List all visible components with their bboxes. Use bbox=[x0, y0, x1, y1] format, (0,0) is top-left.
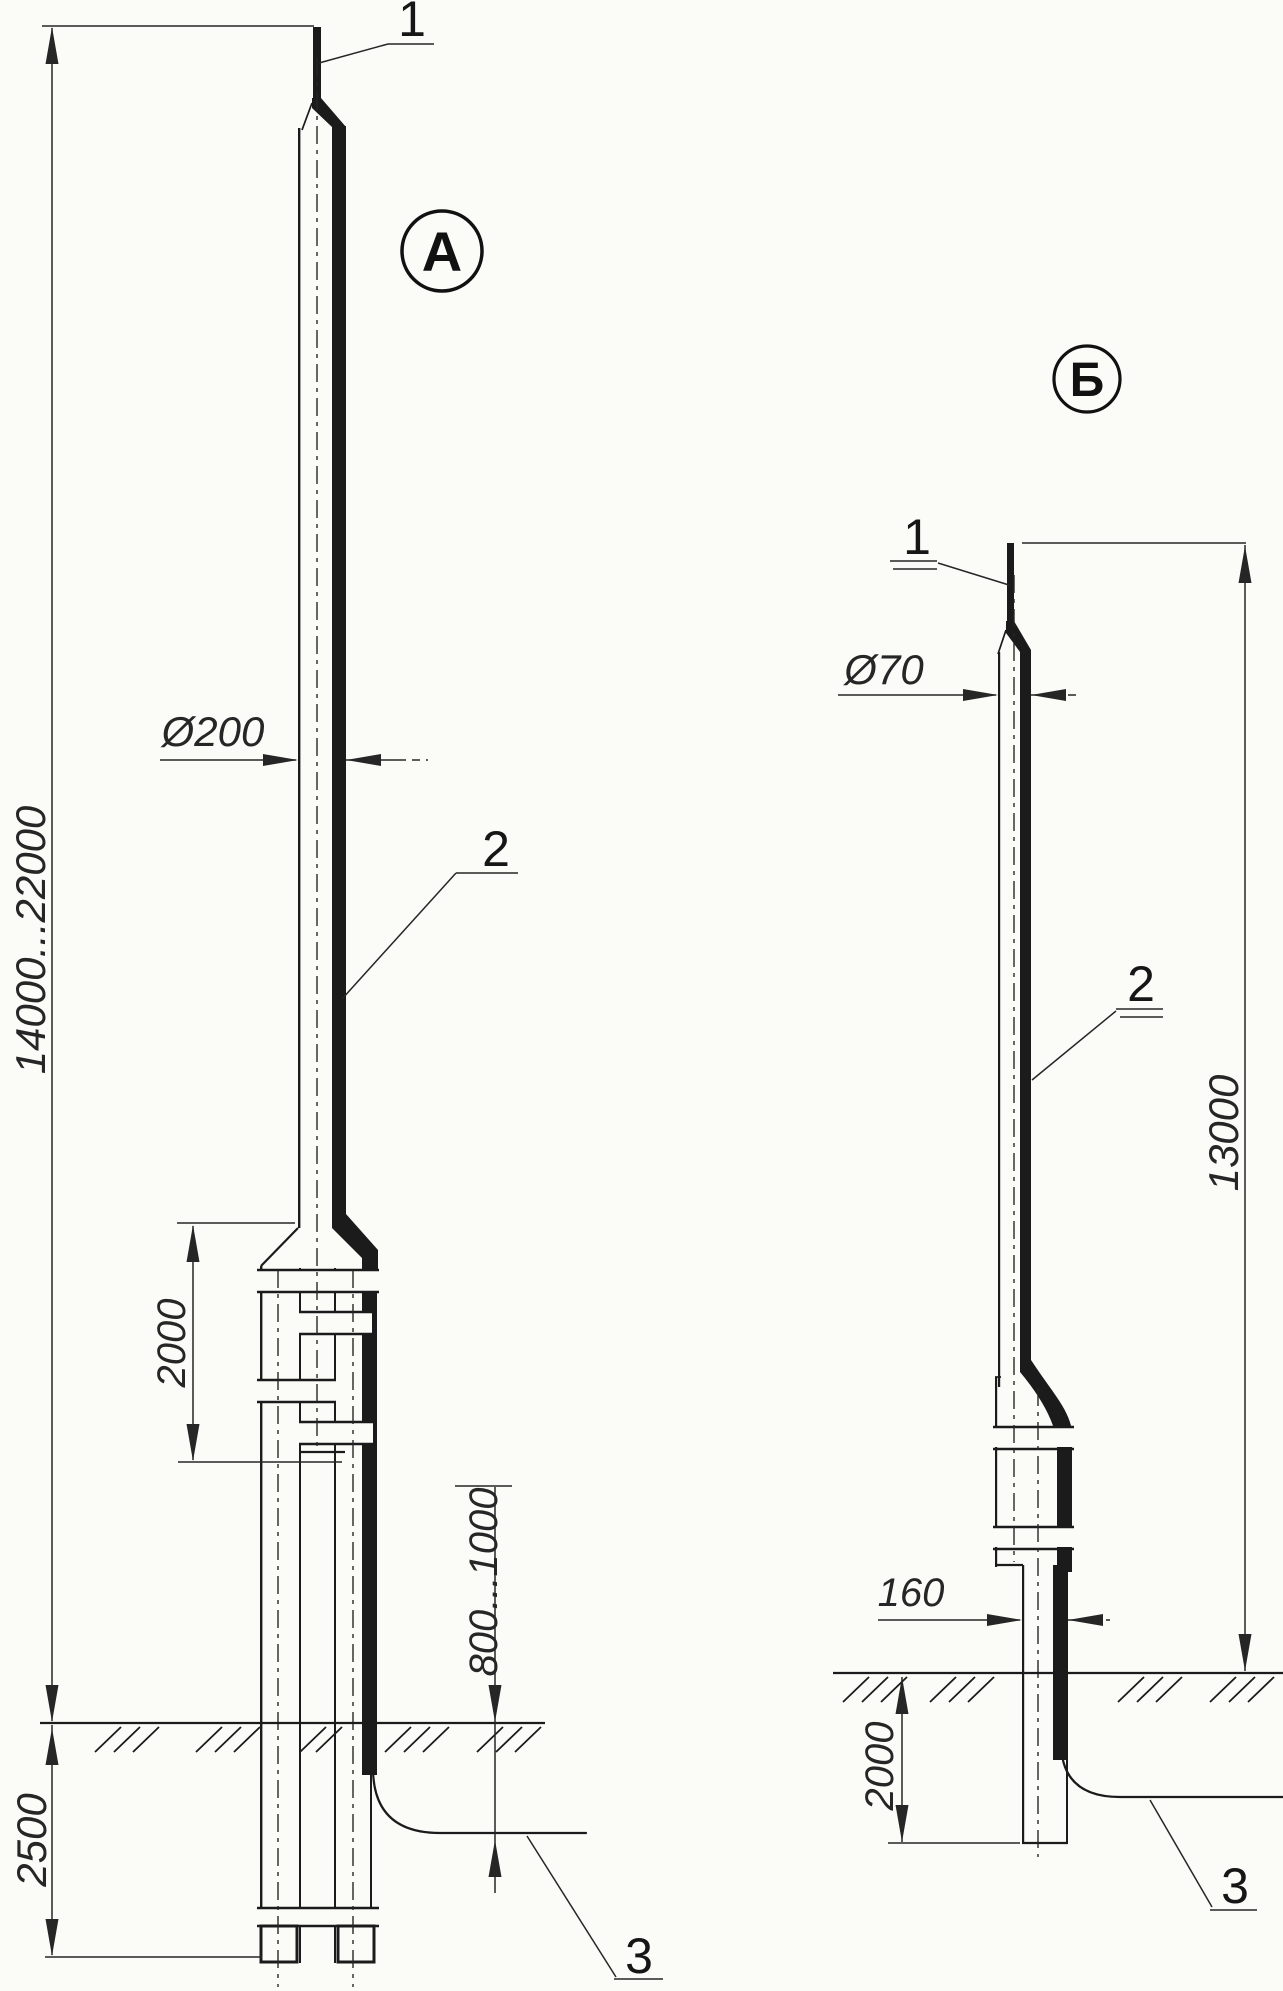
joint-slope-left bbox=[261, 1228, 298, 1266]
dim-a-underground-label: 2500 bbox=[8, 1793, 55, 1888]
dim-a-diameter-label: Ø200 bbox=[160, 708, 265, 755]
post-wall-right-thick bbox=[1053, 1565, 1068, 1760]
base-leg-right bbox=[338, 1926, 374, 1962]
callout-a-2: 2 bbox=[342, 821, 518, 999]
arrowhead-down bbox=[46, 1685, 59, 1722]
variant-a-badge: А bbox=[402, 211, 482, 291]
callout-number: 3 bbox=[1221, 1858, 1249, 1914]
tube-wall-right-thick bbox=[332, 126, 346, 1218]
arrowhead-down bbox=[187, 1424, 200, 1461]
mast-b bbox=[993, 543, 1283, 1857]
drawing-canvas: 14000...22000 2500 Ø200 2000 800...1000 bbox=[0, 0, 1283, 1991]
post-wall-left bbox=[1022, 1565, 1024, 1843]
clamp-band-3 bbox=[257, 1380, 336, 1402]
arrowhead-right bbox=[987, 1614, 1022, 1626]
base-wall-inner-right bbox=[334, 1268, 336, 1963]
dim-a-overlap-label: 2000 bbox=[150, 1299, 194, 1389]
dim-b-base: 160 bbox=[878, 1571, 1110, 1626]
leader-line bbox=[319, 44, 388, 63]
base-bottom-cap bbox=[257, 1908, 379, 1926]
callout-number: 1 bbox=[903, 509, 931, 565]
leader-line bbox=[1032, 1011, 1116, 1080]
arrowhead-down bbox=[489, 1685, 502, 1722]
dim-a-height-label: 14000...22000 bbox=[7, 805, 54, 1074]
dim-b-underground-label: 2000 bbox=[858, 1722, 902, 1812]
dim-a-height: 14000...22000 bbox=[7, 27, 59, 1722]
leader-line bbox=[527, 1836, 616, 1977]
cable-curve bbox=[373, 1768, 586, 1833]
clamp-band-2 bbox=[299, 1312, 372, 1334]
variant-b-badge: Б bbox=[1054, 346, 1120, 412]
leader-line bbox=[1150, 1800, 1212, 1907]
callout-b-3: 3 bbox=[1150, 1800, 1257, 1914]
base-wall-left bbox=[260, 1266, 262, 1963]
clamp-band-1 bbox=[993, 1427, 1074, 1449]
base-wall-inner-left bbox=[299, 1268, 301, 1963]
callout-number: 2 bbox=[1127, 956, 1155, 1012]
ground-hatching bbox=[95, 1727, 541, 1752]
clamp-band-2 bbox=[993, 1527, 1074, 1549]
dim-a-cable-depth-label: 800...1000 bbox=[462, 1487, 506, 1676]
tube-wall-left bbox=[998, 652, 1000, 1387]
dim-b-diameter-label: Ø70 bbox=[842, 646, 924, 693]
callout-b-2: 2 bbox=[1032, 956, 1163, 1080]
callout-b-1: 1 bbox=[890, 509, 1009, 585]
badge-letter: Б bbox=[1070, 354, 1105, 407]
dim-a-diameter: Ø200 bbox=[160, 708, 428, 766]
arrowhead-down bbox=[46, 1919, 59, 1956]
arrowhead-up bbox=[1239, 546, 1252, 583]
dim-b-diameter: Ø70 bbox=[838, 646, 1080, 701]
dim-b-height-label: 13000 bbox=[1200, 1074, 1247, 1191]
base-leg-left bbox=[261, 1926, 297, 1962]
arrowhead-right bbox=[963, 689, 998, 701]
leader-line bbox=[342, 873, 456, 999]
clamp-band-4 bbox=[299, 1422, 373, 1444]
clamp-band-1 bbox=[257, 1270, 379, 1292]
callout-number: 1 bbox=[398, 0, 426, 47]
tube-wall-left bbox=[298, 128, 300, 1228]
badge-letter: А bbox=[422, 220, 462, 283]
tube-shoulder-line bbox=[998, 630, 1006, 654]
ground-a bbox=[40, 1723, 545, 1752]
tube-shoulder-line bbox=[302, 103, 312, 130]
arrowhead-up bbox=[187, 1225, 200, 1262]
arrowhead-down bbox=[1239, 1634, 1252, 1671]
arrowhead-up bbox=[46, 27, 59, 64]
callout-a-1: 1 bbox=[319, 0, 434, 63]
arrowhead-up bbox=[489, 1840, 502, 1877]
dim-b-height: 13000 bbox=[1200, 545, 1252, 1671]
arrowhead-right bbox=[263, 754, 298, 766]
callout-number: 2 bbox=[482, 821, 510, 877]
dim-b-base-label: 160 bbox=[878, 1571, 945, 1615]
mast-a bbox=[42, 26, 586, 1987]
callout-a-3: 3 bbox=[527, 1836, 663, 1984]
cable-curve bbox=[1061, 1742, 1283, 1797]
arrowhead-up bbox=[46, 1728, 59, 1765]
mast-drawing-svg: 14000...22000 2500 Ø200 2000 800...1000 bbox=[0, 0, 1283, 1991]
callout-number: 3 bbox=[625, 1928, 653, 1984]
base-wall-right-thick bbox=[362, 1262, 377, 1775]
tube-wall-right-thick bbox=[1020, 650, 1031, 1362]
arrowhead-up bbox=[896, 1677, 909, 1714]
dim-a-underground: 2500 bbox=[8, 1725, 262, 1957]
leader-line bbox=[938, 563, 1009, 585]
